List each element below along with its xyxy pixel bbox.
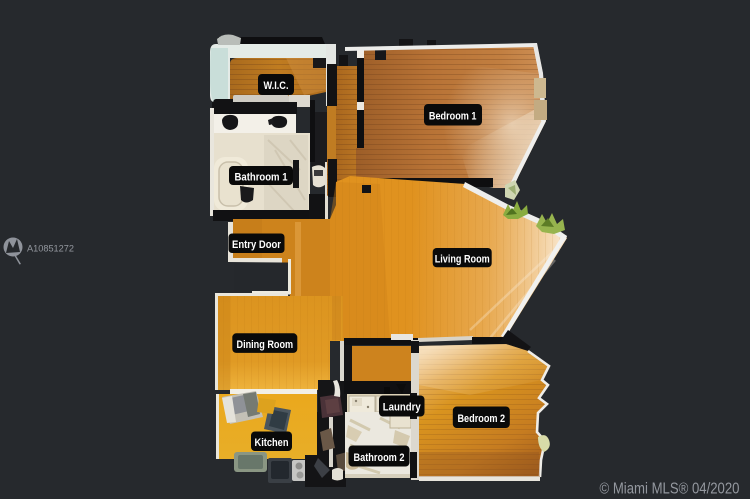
svg-text:Bedroom 1: Bedroom 1 (429, 110, 477, 122)
svg-text:Entry Door: Entry Door (232, 239, 282, 251)
svg-text:Bathroom 1: Bathroom 1 (235, 172, 288, 184)
svg-text:Living Room: Living Room (435, 254, 490, 266)
svg-text:Dining Room: Dining Room (237, 339, 294, 351)
svg-text:Kitchen: Kitchen (255, 437, 289, 449)
svg-text:W.I.C.: W.I.C. (264, 80, 289, 92)
svg-text:Laundry: Laundry (383, 402, 422, 414)
svg-text:© Miami MLS® 04/2020: © Miami MLS® 04/2020 (600, 481, 740, 498)
svg-text:Bedroom 2: Bedroom 2 (457, 413, 505, 425)
svg-text:A10851272: A10851272 (27, 244, 74, 255)
svg-text:Bathroom 2: Bathroom 2 (354, 452, 405, 464)
